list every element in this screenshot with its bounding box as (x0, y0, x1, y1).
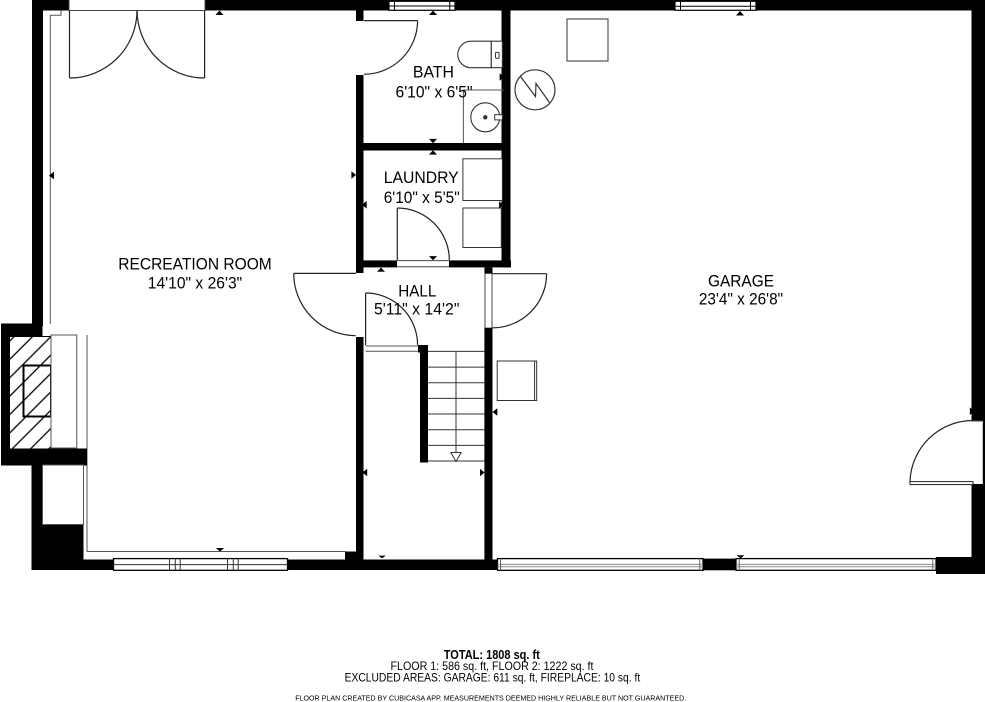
svg-text:5'11" x 14'2": 5'11" x 14'2" (374, 300, 460, 319)
svg-text:GARAGE: GARAGE (708, 272, 774, 291)
svg-text:BATH: BATH (413, 63, 454, 82)
svg-text:6'10" x 5'5": 6'10" x 5'5" (384, 188, 460, 207)
svg-text:23'4" x 26'8": 23'4" x 26'8" (699, 290, 783, 309)
svg-text:14'10" x 26'3": 14'10" x 26'3" (148, 274, 243, 293)
svg-text:FLOOR PLAN CREATED BY CUBICASA: FLOOR PLAN CREATED BY CUBICASA APP. MEAS… (295, 694, 686, 702)
svg-text:HALL: HALL (398, 282, 436, 301)
svg-text:LAUNDRY: LAUNDRY (384, 168, 459, 187)
svg-text:RECREATION ROOM: RECREATION ROOM (118, 255, 272, 274)
svg-text:6'10" x 6'5": 6'10" x 6'5" (396, 83, 473, 102)
svg-text:EXCLUDED AREAS: GARAGE: 611 sq: EXCLUDED AREAS: GARAGE: 611 sq. ft, FIRE… (345, 671, 641, 685)
